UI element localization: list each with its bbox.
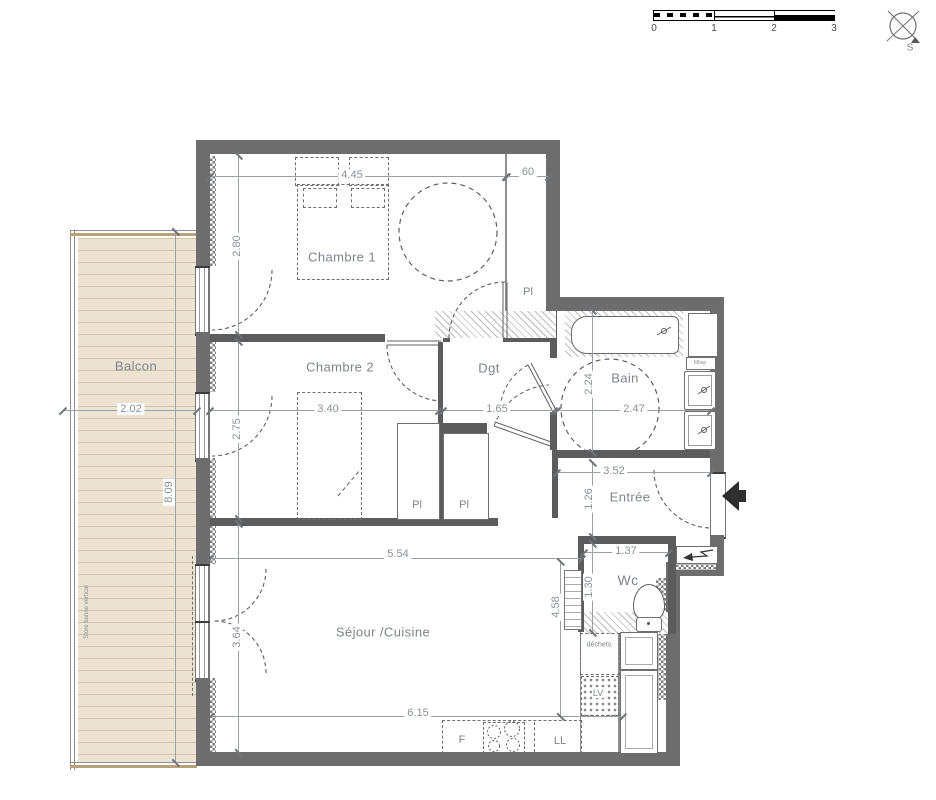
dim-line-kitchen-h [560,562,561,716]
dim-dgt-w: 1.65 [483,403,510,415]
door-arc-chambre2 [387,345,443,401]
closet-label-dgt: Pl [459,499,469,511]
dim-ch1-w: 4.45 [338,169,365,181]
dim-closet-w: 60 [519,166,537,178]
lightning-icon [683,550,713,561]
door-leaf-chambre2 [387,341,441,345]
dim-entree-h: 1.26 [583,485,595,512]
door-leaf-chambre1 [503,282,507,338]
door-leaf-corridor [494,422,554,447]
dim-entree-w: 3.52 [600,465,627,477]
dim-sejour-h: 3.64 [231,623,243,650]
room-label-bain: Bain [611,371,639,386]
closet-label-ch1: Pl [523,286,533,298]
turning-circle-chambre1 [399,183,497,281]
dim-line-balcon-h [175,232,176,762]
closet-label-ch2: Pl [412,499,422,511]
room-label-chambre1: Chambre 1 [308,250,376,265]
door-arc-chambre1-balcony [212,270,272,330]
door-arc-chambre1 [449,282,505,338]
hob-burner-2 [505,722,520,737]
bathtub-faucet [657,327,671,335]
room-label-sejour: Séjour /Cuisine [336,625,430,640]
door-leaf-bain [528,363,556,412]
dim-balcon-w: 2.02 [117,403,144,415]
washbasin-2-faucet [698,426,710,434]
bed-chambre2-fold [338,470,360,496]
room-label-dgt: Dgt [478,361,499,376]
hob-burner-3 [489,741,500,752]
room-label-entree: Entrée [610,490,651,505]
dim-ch2-w: 3.40 [314,403,341,415]
dim-bain-h: 2.24 [583,370,595,397]
washbasin-1-faucet [698,386,710,394]
dim-wc-h: 1.30 [583,573,595,600]
dim-kitchen-h: 4.58 [550,593,562,620]
dim-ch2-h: 2.75 [231,415,243,442]
floor-plan: 0 1 2 3 S Balcon Store banne vertical VR [0,0,936,800]
hob-burner-4 [507,739,520,752]
hob-burner-1 [488,726,501,739]
dim-wc-w: 1.37 [612,545,639,557]
dim-bain-w: 2.47 [620,403,647,415]
dim-sejour-w2: 6.15 [404,707,431,719]
dim-line-entree-w [557,472,710,473]
dim-ch1-h: 2.80 [231,232,243,259]
door-arc-sejour-upper [214,569,266,621]
dim-balcon-h: 8.09 [163,478,175,505]
room-label-wc: Wc [617,572,638,588]
door-arc-entry [654,470,712,528]
room-label-chambre2: Chambre 2 [306,360,374,375]
dim-sejour-w: 5.54 [384,548,411,560]
plan-symbols [0,0,936,800]
